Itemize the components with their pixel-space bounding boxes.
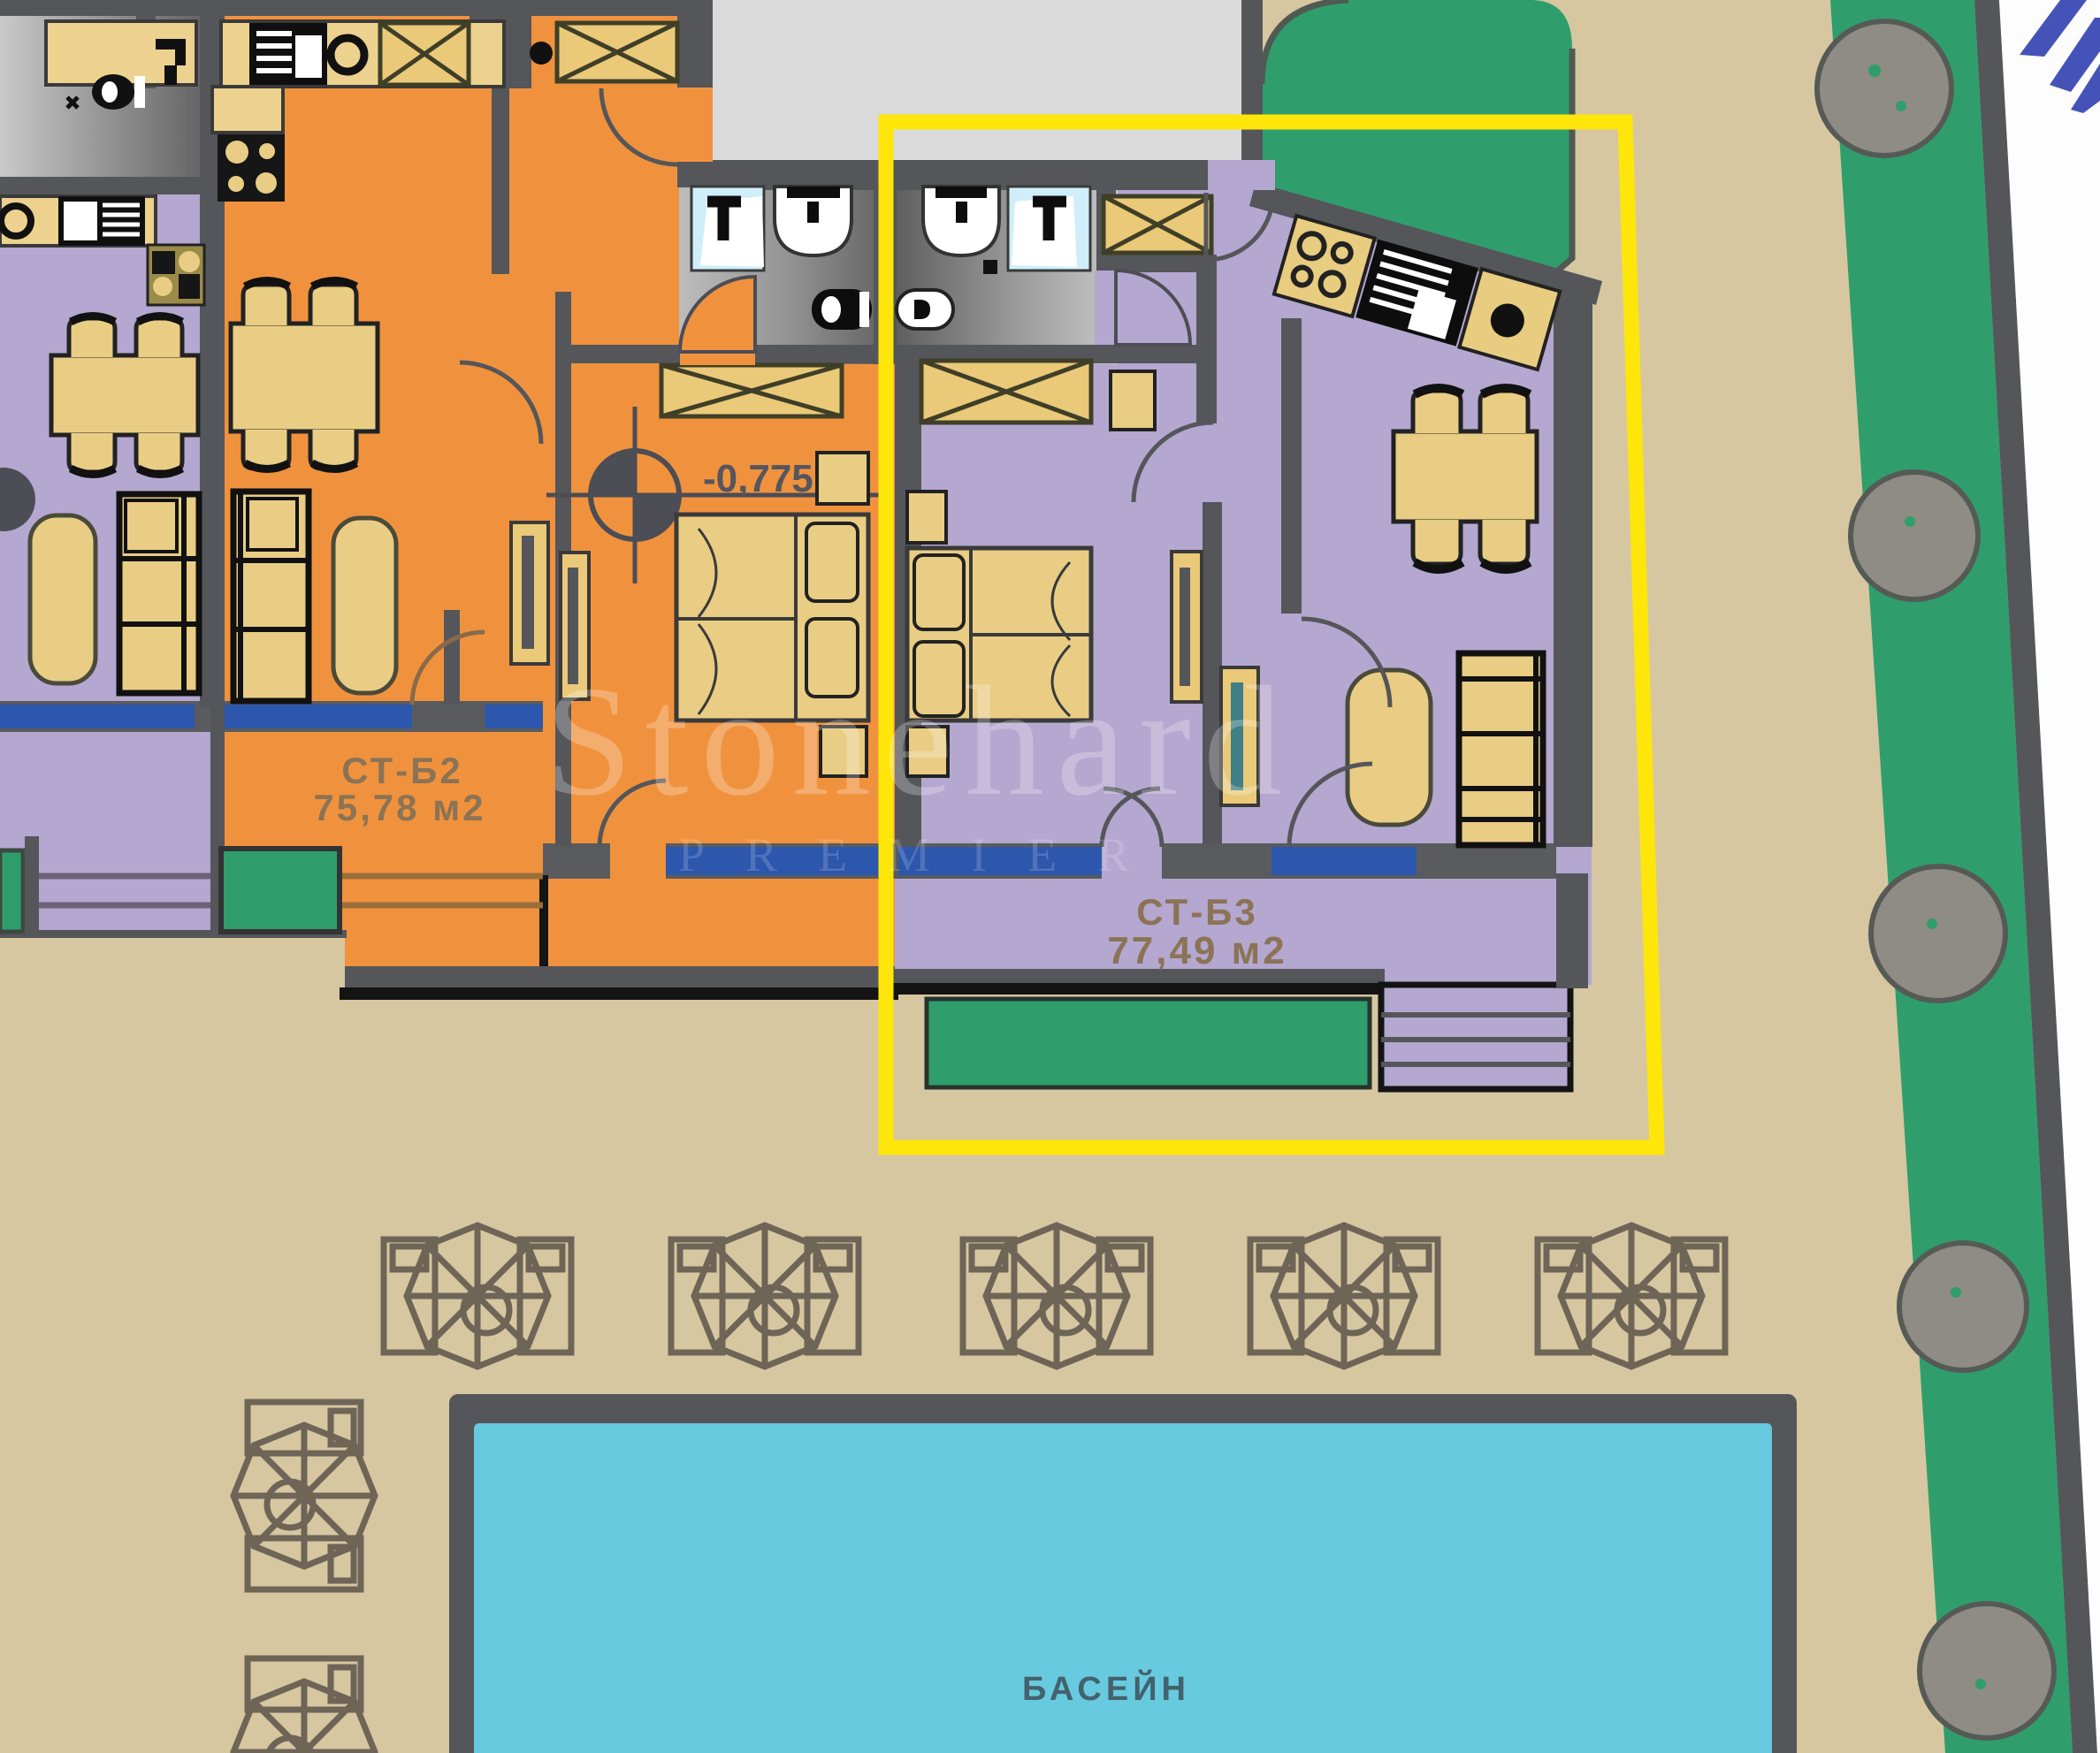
svg-text:СТ-Б3: СТ-Б3 [1136, 891, 1257, 933]
svg-text:77,49 м2: 77,49 м2 [1107, 929, 1287, 972]
svg-text:Stonehard: Stonehard [545, 653, 1294, 828]
svg-text:БАСЕЙН: БАСЕЙН [1022, 1668, 1190, 1708]
svg-text:СТ-Б2: СТ-Б2 [341, 750, 462, 791]
svg-text:-0,775: -0,775 [703, 457, 813, 500]
svg-text:75,78 м2: 75,78 м2 [313, 787, 485, 828]
svg-text:PREMIER: PREMIER [678, 828, 1170, 881]
